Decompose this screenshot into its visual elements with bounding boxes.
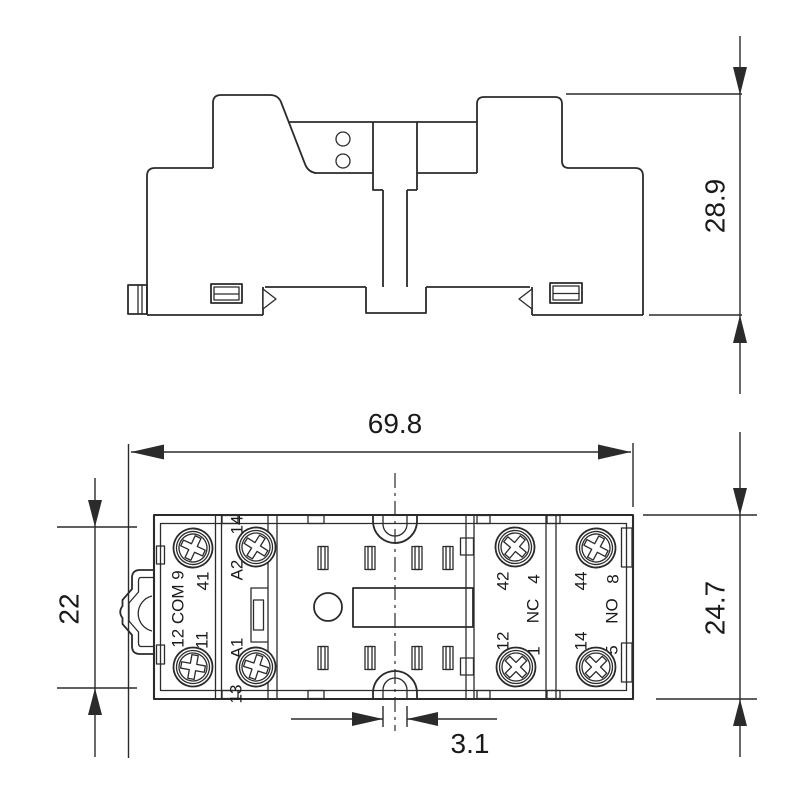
side-hole-upper <box>336 132 350 146</box>
cavity-window <box>353 588 473 627</box>
arrowhead-right <box>352 712 383 726</box>
label-42: 42 <box>494 572 513 591</box>
dim-overall-width-value: 69.8 <box>368 408 423 439</box>
side-terminal-box-left <box>211 284 242 303</box>
label-nc: NC <box>524 599 543 624</box>
face-view: 41 12 COM 9 11 14 A2 A1 13 42 4 NC 12 1 … <box>120 473 633 731</box>
side-hole-lower <box>336 154 350 168</box>
arrowhead-up <box>733 315 747 343</box>
arrowhead-up <box>733 699 747 726</box>
relay-cavity <box>314 515 473 699</box>
arrowhead-down <box>88 500 102 527</box>
side-hump <box>213 95 316 173</box>
arrowhead-left <box>407 712 438 726</box>
side-terminal-box-right <box>550 283 582 303</box>
side-center-block <box>373 122 417 190</box>
label-11: 11 <box>193 631 212 649</box>
side-foot <box>366 287 426 313</box>
arrowhead-down <box>733 488 747 515</box>
dimension-side-height: 28.9 <box>566 36 747 394</box>
side-clip-tab <box>128 285 147 314</box>
label-no: NO <box>603 598 622 624</box>
din-clip <box>120 570 154 654</box>
side-notch-flag-left <box>263 289 276 309</box>
arrowhead-down <box>733 67 747 95</box>
contact-slot <box>318 547 453 570</box>
label-4: 4 <box>525 574 544 583</box>
dimension-notch-width: 3.1 <box>291 706 497 759</box>
label-41: 41 <box>194 572 213 591</box>
arrowhead-up <box>88 688 102 715</box>
screw-terminal <box>570 522 623 575</box>
cavity-hole <box>314 593 342 621</box>
contact-slot <box>318 647 453 670</box>
dim-body-height-value: 22 <box>54 593 85 624</box>
side-notch-walls <box>263 287 532 315</box>
label-8: 8 <box>604 574 623 583</box>
screw-terminal <box>167 522 219 574</box>
side-stem <box>383 190 407 287</box>
screw-terminal <box>488 520 543 575</box>
drawing-page: 28.9 <box>0 0 800 800</box>
dimension-overall-depth: 24.7 <box>643 432 757 757</box>
dim-overall-depth-value: 24.7 <box>700 581 731 636</box>
dim-notch-width-value: 3.1 <box>451 728 490 759</box>
label-13: 13 <box>227 685 246 704</box>
screw-terminal <box>170 644 215 689</box>
side-body-left <box>147 168 213 315</box>
label-14-no: 14 <box>572 632 591 651</box>
drawing-canvas: 28.9 <box>0 0 800 800</box>
label-12-com-9: 12 COM 9 <box>169 570 188 647</box>
side-notch-flag-right <box>519 289 532 309</box>
side-view <box>128 95 643 315</box>
label-44: 44 <box>572 572 591 591</box>
dimension-body-height: 22 <box>54 478 138 757</box>
dim-side-height-value: 28.9 <box>700 179 731 234</box>
arrowhead-right <box>598 445 631 460</box>
arrowhead-left <box>131 445 164 460</box>
extension-lines <box>129 443 634 758</box>
